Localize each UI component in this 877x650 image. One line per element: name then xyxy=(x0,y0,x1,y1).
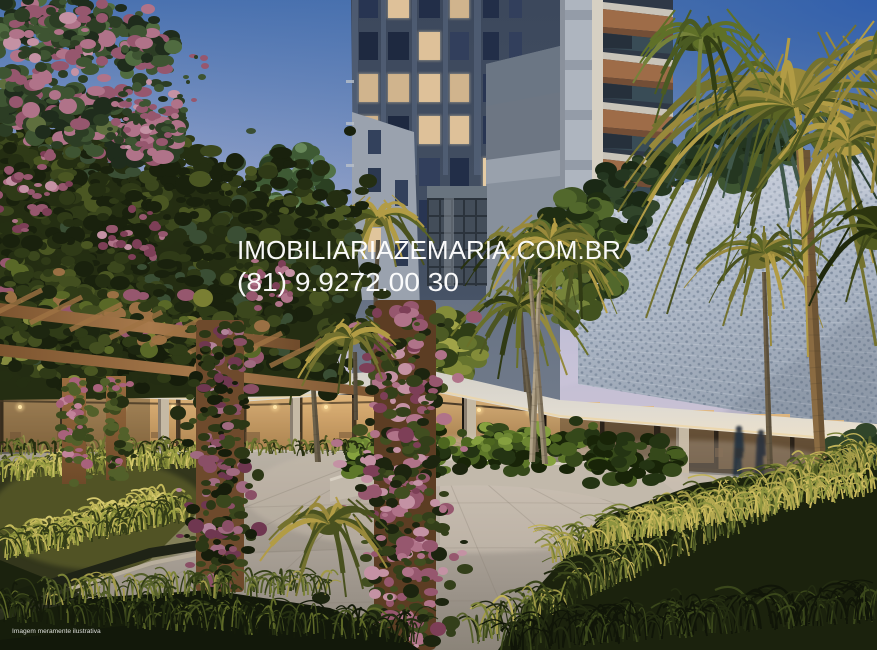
svg-text:Imagem meramente ilustrativa: Imagem meramente ilustrativa xyxy=(12,628,101,635)
svg-text:IMOBILIARIAZEMARIA.COM.BR: IMOBILIARIAZEMARIA.COM.BR xyxy=(237,235,621,265)
svg-text:(81) 9.9272.00 30: (81) 9.9272.00 30 xyxy=(237,267,459,297)
